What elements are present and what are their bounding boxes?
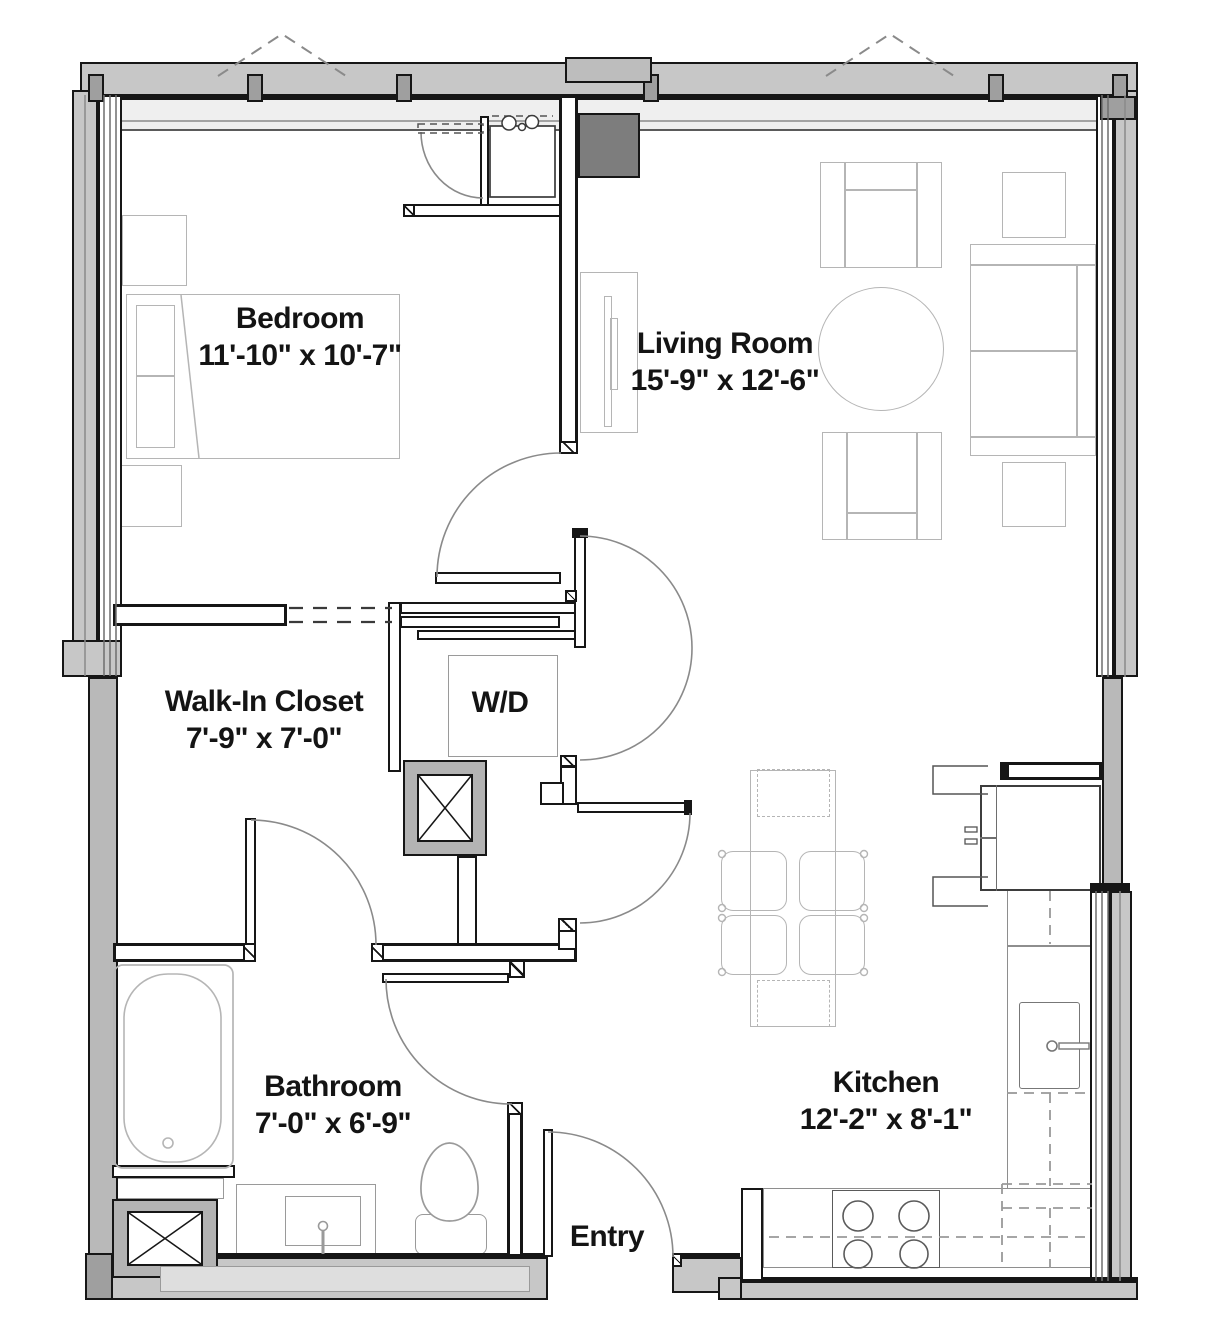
wall-bottom-left-corner [85,1253,113,1300]
bedroom-door-leaf [435,572,561,584]
mullion [88,74,104,102]
bedroom-door-swing [437,453,561,577]
niche-door-swing [421,132,483,198]
bed-pillow-split [136,375,175,377]
dining-chair [721,851,787,911]
mech-fixture [490,126,555,197]
floor-plan: Bedroom 11'-10" x 10'-7" Living Room 15'… [0,0,1220,1336]
label-living-room: Living Room 15'-9" x 12'-6" [631,325,820,399]
wd-sliding-door [400,616,560,628]
top-column-block [565,57,652,83]
room-name: Bedroom [198,300,401,337]
room-name: Walk-In Closet [165,683,364,720]
wall-right-solid [1102,677,1123,887]
bed-pillow [136,305,175,448]
mullion [988,74,1004,102]
label-bedroom: Bedroom 11'-10" x 10'-7" [198,300,401,374]
room-dims: 12'-2" x 8'-1" [800,1101,972,1138]
closet-door-leaf [245,818,256,945]
toilet [421,1143,478,1221]
label-washer-dryer: W/D [472,686,529,720]
wall-right-glazing-glass [1096,95,1114,677]
room-name: Living Room [631,325,820,362]
wall-left-glazing-outer [72,90,98,676]
wall-left-end-block [62,640,122,677]
armchair-bottom [822,432,942,540]
armchair-top [820,162,942,268]
wd-sliding-door [400,602,577,614]
nightstand-bottom [120,465,182,527]
side-table-top [1002,172,1066,238]
room-name: Kitchen [800,1064,972,1101]
toilet-tank [415,1214,487,1255]
wall-right-lower-glass [1090,891,1110,1281]
wall-closet-top [113,604,287,626]
label-bathroom: Bathroom 7'-0" x 6'-9" [255,1068,411,1142]
wall-right-corner-block [1100,96,1136,120]
shaft-chase-dark [578,113,640,178]
nightstand-top [122,215,187,286]
wall-bath-top-left [113,943,256,962]
dining-chair-south [757,980,830,1027]
side-table-bottom [1002,462,1066,527]
wall-bedroom-living [559,95,578,453]
wall-closet-hall [457,856,477,947]
dining-chair [799,915,865,975]
dining-chair [721,915,787,975]
wall-kitchen-jog [741,1188,763,1281]
refrigerator [980,785,1101,891]
wall-niche-left [480,116,489,214]
shaft-duct [417,774,473,842]
wd-sliding-door [417,630,577,640]
wall-closet-bath [371,943,577,962]
entry-door-leaf [543,1129,553,1257]
coffee-table [818,287,944,411]
hall-door-swing-2 [580,813,690,923]
room-dims: 7'-9" x 7'-0" [165,720,364,757]
room-dims: 15'-9" x 12'-6" [631,362,820,399]
wall-left-glazing-glass [98,95,122,676]
wall-kitchen-top-stub [1000,762,1102,780]
kitchen-sink [1019,1002,1080,1089]
wall-right-glazing-outer [1114,90,1138,677]
tv-mount [610,318,618,390]
label-kitchen: Kitchen 12'-2" x 8'-1" [800,1064,972,1138]
wall-bath-entry [507,1102,523,1257]
room-dims: 11'-10" x 10'-7" [198,337,401,374]
closet-door-swing [251,820,376,945]
hall-door-swing [580,536,692,760]
bathtub [114,965,233,1168]
wall-niche-bottom [403,204,561,217]
mullion [247,74,263,102]
bath-ledge [115,1178,224,1199]
room-name: Bathroom [255,1068,411,1105]
wall-right-lower-outer [1110,891,1132,1281]
range-stove [832,1190,940,1268]
room-dims: 7'-0" x 6'-9" [255,1105,411,1142]
bathroom-door-leaf [382,973,509,983]
dining-chair [799,851,865,911]
hall-door-leaf-kitchen [577,802,690,813]
vanity-sink [285,1196,361,1246]
label-walk-in-closet: Walk-In Closet 7'-9" x 7'-0" [165,683,364,757]
mullion [396,74,412,102]
wall-bottom-kitchen [740,1281,1138,1300]
bath-shaft-duct [127,1211,203,1266]
label-entry: Entry [570,1220,644,1254]
